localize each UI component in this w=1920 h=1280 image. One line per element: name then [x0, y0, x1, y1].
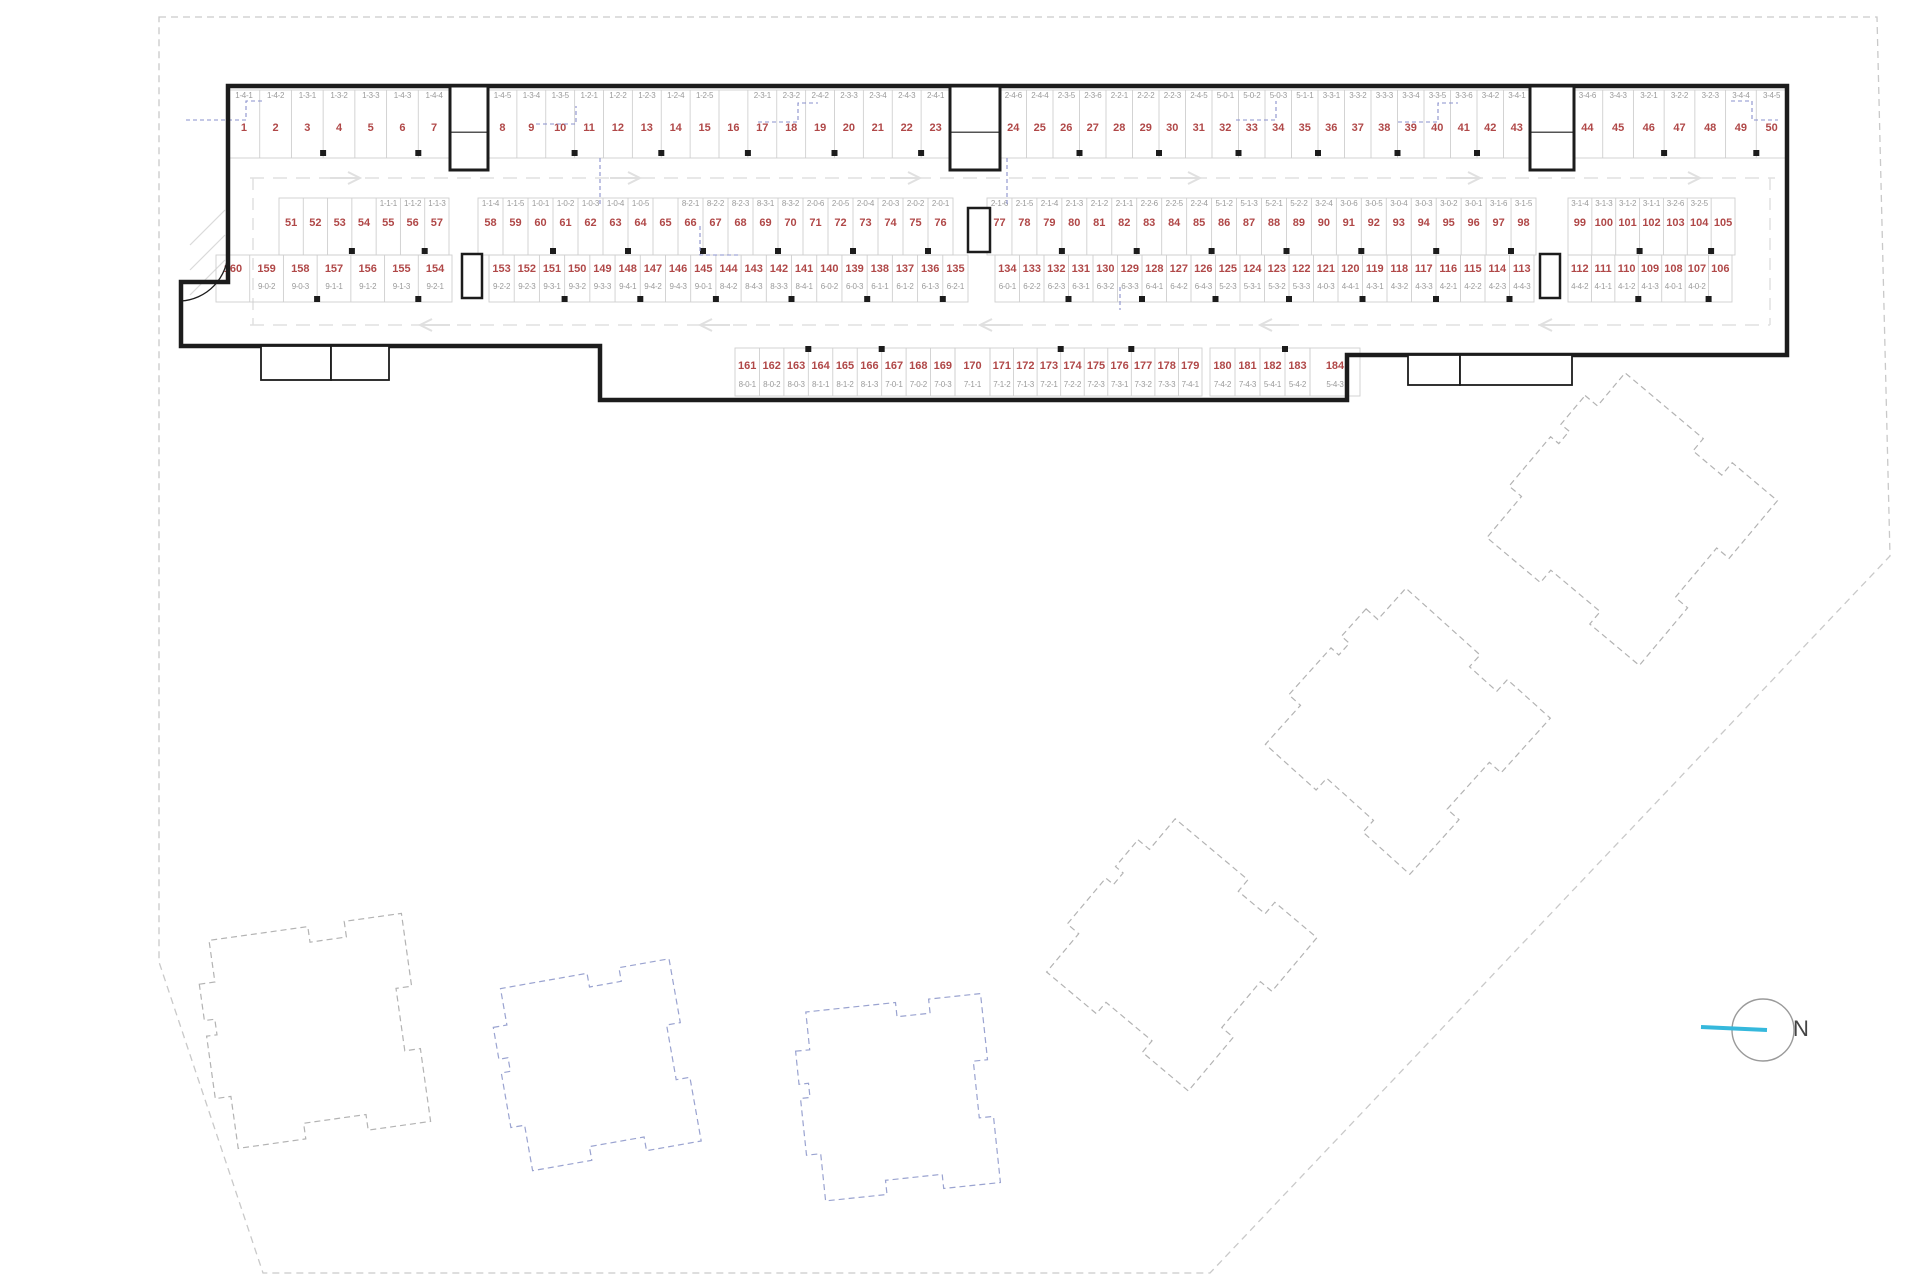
parking-space-code: 2-3-6: [1084, 91, 1102, 100]
parking-space-number: 145: [694, 263, 712, 275]
parking-space-code: 1-3-5: [552, 91, 570, 100]
column: [864, 296, 870, 302]
parking-space-number: 84: [1168, 217, 1181, 229]
parking-space-code: 1-3-3: [362, 91, 380, 100]
parking-space-number: 129: [1121, 263, 1139, 275]
parking-space-code: 1-1-2: [404, 199, 422, 208]
column: [1635, 296, 1641, 302]
parking-space-number: 94: [1418, 217, 1431, 229]
column: [805, 346, 811, 352]
parking-space-number: 66: [684, 217, 696, 229]
parking-space-code: 9-1-1: [325, 282, 343, 291]
parking-space-number: 169: [934, 360, 952, 372]
parking-space-code: 9-2-3: [518, 282, 536, 291]
parking-space-code: 6-0-1: [999, 282, 1017, 291]
parking-space-code: 7-4-1: [1182, 380, 1200, 389]
parking-space-number: 48: [1704, 122, 1716, 134]
parking-space-number: 149: [593, 263, 611, 275]
parking-space-number: 157: [325, 263, 343, 275]
column: [1360, 296, 1366, 302]
parking-space-code: 3-0-1: [1465, 199, 1483, 208]
parking-space-code: 9-3-3: [594, 282, 612, 291]
parking-space-number: 26: [1060, 122, 1072, 134]
parking-space-number: 37: [1352, 122, 1364, 134]
parking-space-code: 1-4-5: [494, 91, 512, 100]
column: [1213, 296, 1219, 302]
parking-space-code: 4-0-2: [1688, 282, 1706, 291]
parking-space-code: 5-0-1: [1217, 91, 1235, 100]
parking-space-number: 51: [285, 217, 297, 229]
column: [1395, 150, 1401, 156]
parking-space-number: 71: [809, 217, 821, 229]
parking-space-number: 79: [1043, 217, 1055, 229]
parking-space-code: 3-3-3: [1376, 91, 1394, 100]
column: [415, 296, 421, 302]
parking-space-number: 173: [1040, 360, 1058, 372]
parking-space-code: 7-2-3: [1087, 380, 1105, 389]
parking-space-number: 158: [291, 263, 309, 275]
parking-space-code: 1-3-4: [523, 91, 541, 100]
parking-space-number: 16: [727, 122, 739, 134]
parking-space-number: 92: [1368, 217, 1380, 229]
parking-space-code: 9-1-3: [393, 282, 411, 291]
parking-space-number: 123: [1268, 263, 1286, 275]
parking-space-number: 134: [998, 263, 1017, 275]
column: [745, 150, 751, 156]
parking-space-number: 135: [946, 263, 964, 275]
parking-space-number: 150: [568, 263, 586, 275]
parking-space-number: 80: [1068, 217, 1080, 229]
parking-space-number: 111: [1595, 263, 1612, 275]
parking-space-number: 95: [1443, 217, 1455, 229]
parking-space-code: 3-3-1: [1323, 91, 1341, 100]
parking-space-number: 29: [1140, 122, 1152, 134]
parking-space-code: 3-4-2: [1482, 91, 1500, 100]
parking-space-code: 2-0-5: [832, 199, 850, 208]
parking-space-code: 2-0-4: [857, 199, 875, 208]
parking-space-number: 45: [1612, 122, 1624, 134]
parking-space-number: 142: [770, 263, 788, 275]
parking-space-code: 2-3-2: [783, 91, 801, 100]
parking-space-code: 8-3-1: [757, 199, 775, 208]
column: [349, 248, 355, 254]
parking-space-code: 3-2-5: [1691, 199, 1709, 208]
unit-boundary-dash: [758, 103, 818, 122]
parking-space-number: 99: [1574, 217, 1586, 229]
parking-space-code: 2-1-4: [1041, 199, 1059, 208]
parking-space-number: 140: [820, 263, 838, 275]
parking-space-code: 3-4-6: [1579, 91, 1597, 100]
parking-space-number: 131: [1072, 263, 1090, 275]
column: [940, 296, 946, 302]
parking-space-number: 125: [1219, 263, 1237, 275]
parking-space-number: 146: [669, 263, 687, 275]
parking-space-code: 8-2-1: [682, 199, 700, 208]
parking-space-code: 4-4-3: [1513, 282, 1531, 291]
elevator-shaft: [1540, 254, 1560, 298]
parking-space-number: 155: [392, 263, 410, 275]
unit-boundary-dash: [1236, 101, 1276, 120]
column: [832, 150, 838, 156]
parking-space-code: 2-4-3: [898, 91, 916, 100]
parking-space-number: 130: [1096, 263, 1114, 275]
parking-space-number: 119: [1366, 263, 1384, 275]
parking-space-number: 14: [670, 122, 683, 134]
parking-space-number: 3: [304, 122, 310, 134]
parking-space-code: 8-3-2: [782, 199, 800, 208]
column: [1077, 150, 1083, 156]
parking-space-code: 4-2-2: [1464, 282, 1482, 291]
parking-space-number: 176: [1110, 360, 1128, 372]
parking-space-number: 64: [634, 217, 647, 229]
column: [1661, 150, 1667, 156]
parking-space-number: 120: [1341, 263, 1359, 275]
parking-space-code: 1-4-2: [267, 91, 285, 100]
parking-space-code: 1-2-4: [667, 91, 685, 100]
floor-plan-drawing: 11-4-121-4-231-3-141-3-251-3-361-4-371-4…: [0, 0, 1920, 1280]
parking-space-code: 2-3-4: [869, 91, 887, 100]
parking-space-number: 106: [1711, 263, 1729, 275]
parking-space-code: 7-2-2: [1064, 380, 1082, 389]
parking-space-number: 75: [909, 217, 921, 229]
parking-space-code: 5-1-3: [1240, 199, 1258, 208]
column: [314, 296, 320, 302]
parking-space-code: 6-0-2: [821, 282, 839, 291]
parking-space-code: 1-0-3: [582, 199, 600, 208]
parking-space-number: 13: [641, 122, 653, 134]
building-footprint: [1487, 373, 1778, 666]
parking-space-code: 4-3-2: [1391, 282, 1409, 291]
parking-space-code: 1-2-2: [609, 91, 627, 100]
parking-space-number: 132: [1047, 263, 1065, 275]
parking-space-code: 6-3-1: [1072, 282, 1090, 291]
parking-space-number: 93: [1393, 217, 1405, 229]
parking-space-number: 46: [1643, 122, 1655, 134]
parking-space-number: 32: [1219, 122, 1231, 134]
parking-space-code: 1-0-4: [607, 199, 625, 208]
parking-space-code: 4-2-3: [1489, 282, 1507, 291]
parking-space-number: 121: [1317, 263, 1335, 275]
parking-space-code: 8-2-2: [707, 199, 725, 208]
parking-space-number: 162: [763, 360, 781, 372]
parking-space-number: 34: [1272, 122, 1285, 134]
parking-space-code: 6-2-2: [1023, 282, 1041, 291]
column: [550, 248, 556, 254]
parking-space-code: 6-4-2: [1170, 282, 1188, 291]
column: [1236, 150, 1242, 156]
parking-space-number: 152: [518, 263, 536, 275]
parking-space-number: 122: [1292, 263, 1310, 275]
parking-space-code: 3-1-6: [1490, 199, 1508, 208]
parking-space-number: 96: [1467, 217, 1479, 229]
parking-space-code: 3-4-3: [1610, 91, 1628, 100]
parking-space-code: 5-2-3: [1219, 282, 1237, 291]
parking-space-number: 124: [1243, 263, 1262, 275]
parking-space-code: 9-0-1: [695, 282, 713, 291]
parking-space-number: 62: [584, 217, 596, 229]
parking-space-number: 18: [785, 122, 797, 134]
service-room: [1408, 355, 1460, 385]
parking-space-code: 5-1-2: [1216, 199, 1234, 208]
column: [1284, 248, 1290, 254]
parking-space-code: 6-0-3: [846, 282, 864, 291]
parking-space-code: 2-4-5: [1190, 91, 1208, 100]
column: [713, 296, 719, 302]
column: [1508, 248, 1514, 254]
parking-space-code: 1-3-2: [330, 91, 348, 100]
parking-space-code: 8-3-3: [770, 282, 788, 291]
parking-space-number: 53: [334, 217, 346, 229]
parking-space-number: 78: [1018, 217, 1030, 229]
parking-space-number: 143: [745, 263, 763, 275]
column: [1474, 150, 1480, 156]
parking-space-code: 3-4-4: [1732, 91, 1750, 100]
column: [1358, 248, 1364, 254]
column: [1507, 296, 1513, 302]
parking-space-number: 154: [426, 263, 445, 275]
column: [625, 248, 631, 254]
parking-space-code: 6-2-3: [1048, 282, 1066, 291]
parking-space-number: 8: [499, 122, 505, 134]
parking-space-number: 184: [1326, 360, 1345, 372]
parking-space-code: 3-3-6: [1455, 91, 1473, 100]
parking-space-code: 2-4-2: [812, 91, 830, 100]
parking-space-code: 5-0-2: [1243, 91, 1261, 100]
parking-space-number: 12: [612, 122, 624, 134]
parking-space-number: 65: [659, 217, 671, 229]
parking-space-number: 180: [1213, 360, 1231, 372]
column: [320, 150, 326, 156]
parking-space-number: 118: [1390, 263, 1408, 275]
parking-space-number: 116: [1439, 263, 1457, 275]
parking-space-number: 74: [884, 217, 897, 229]
parking-space-code: 7-1-2: [993, 380, 1011, 389]
parking-space-number: 4: [336, 122, 343, 134]
parking-space-code: 9-3-1: [543, 282, 561, 291]
parking-space-code: 2-2-2: [1137, 91, 1155, 100]
parking-space-number: 114: [1488, 263, 1507, 275]
column: [658, 150, 664, 156]
parking-space-code: 6-1-1: [871, 282, 889, 291]
column: [775, 248, 781, 254]
parking-space-code: 3-1-5: [1515, 199, 1533, 208]
stair-core: [1530, 86, 1574, 170]
parking-space-number: 83: [1143, 217, 1155, 229]
parking-space-number: 137: [896, 263, 914, 275]
column: [1128, 346, 1134, 352]
elevator-shaft: [968, 208, 990, 252]
parking-space-code: 8-1-2: [836, 380, 854, 389]
parking-space-code: 2-3-1: [754, 91, 772, 100]
column: [1209, 248, 1215, 254]
parking-space-code: 2-2-1: [1111, 91, 1129, 100]
parking-space-number: 56: [406, 217, 418, 229]
parking-space-number: 133: [1023, 263, 1041, 275]
parking-space-code: 3-2-4: [1315, 199, 1333, 208]
parking-space-number: 179: [1181, 360, 1199, 372]
parking-space-code: 1-1-5: [507, 199, 525, 208]
parking-space-code: 3-2-6: [1667, 199, 1685, 208]
parking-space-number: 47: [1673, 122, 1685, 134]
parking-space-code: 1-2-3: [638, 91, 656, 100]
unit-boundary-dash: [1398, 103, 1458, 122]
parking-space-code: 3-3-5: [1429, 91, 1447, 100]
parking-space-number: 82: [1118, 217, 1130, 229]
parking-space-code: 3-1-2: [1619, 199, 1637, 208]
parking-space-number: 77: [993, 217, 1005, 229]
parking-space-number: 97: [1492, 217, 1504, 229]
parking-space-number: 54: [358, 217, 371, 229]
parking-space-number: 52: [309, 217, 321, 229]
parking-space-code: 2-0-1: [932, 199, 950, 208]
parking-space-number: 167: [885, 360, 903, 372]
parking-space-code: 5-2-2: [1290, 199, 1308, 208]
parking-space-number: 11: [583, 122, 595, 134]
parking-space-code: 9-2-2: [493, 282, 511, 291]
parking-space-number: 85: [1193, 217, 1205, 229]
unit-boundary-dash: [186, 101, 263, 120]
parking-space-code: 2-4-1: [927, 91, 945, 100]
parking-space-number: 1: [241, 122, 247, 134]
parking-space-code: 7-3-1: [1111, 380, 1129, 389]
parking-space-number: 67: [709, 217, 721, 229]
parking-space-number: 170: [963, 360, 981, 372]
parking-space-code: 3-0-3: [1415, 199, 1433, 208]
parking-space-code: 5-4-3: [1326, 380, 1344, 389]
parking-space-code: 8-2-3: [732, 199, 750, 208]
unit-boundary-dash: [1731, 101, 1778, 120]
parking-space-code: 4-1-1: [1595, 282, 1613, 291]
parking-space-number: 148: [619, 263, 637, 275]
parking-space-code: 2-4-6: [1005, 91, 1023, 100]
parking-space-code: 4-1-2: [1618, 282, 1636, 291]
parking-space-number: 115: [1464, 263, 1482, 275]
parking-space-code: 8-4-1: [796, 282, 814, 291]
parking-space-number: 178: [1158, 360, 1176, 372]
parking-space-code: 5-4-2: [1289, 380, 1307, 389]
parking-space-number: 113: [1513, 263, 1531, 275]
parking-space-number: 147: [644, 263, 662, 275]
parking-space-code: 6-3-3: [1121, 282, 1139, 291]
parking-space-number: 165: [836, 360, 854, 372]
parking-space-number: 50: [1765, 122, 1777, 134]
parking-space-code: 2-2-3: [1164, 91, 1182, 100]
parking-space-code: 9-4-1: [619, 282, 637, 291]
column: [1433, 296, 1439, 302]
parking-space-number: 171: [993, 360, 1011, 372]
parking-space-code: 5-3-3: [1293, 282, 1311, 291]
parking-space-code: 3-0-2: [1440, 199, 1458, 208]
building-footprint: [796, 994, 1001, 1201]
parking-space-number: 7: [431, 122, 437, 134]
parking-space-number: 141: [795, 263, 813, 275]
parking-space-code: 1-4-1: [235, 91, 253, 100]
parking-space-number: 105: [1714, 217, 1732, 229]
parking-space-code: 7-4-3: [1239, 380, 1257, 389]
parking-space-code: 3-4-5: [1763, 91, 1781, 100]
parking-space-number: 20: [843, 122, 855, 134]
parking-space-number: 35: [1299, 122, 1311, 134]
parking-space-number: 72: [834, 217, 846, 229]
north-label: N: [1793, 1016, 1809, 1042]
parking-space-number: 70: [784, 217, 796, 229]
parking-space-number: 181: [1238, 360, 1256, 372]
column: [415, 150, 421, 156]
parking-space-number: 101: [1618, 217, 1636, 229]
parking-space-code: 2-1-5: [1016, 199, 1034, 208]
parking-space-number: 39: [1405, 122, 1417, 134]
parking-space-number: 60: [534, 217, 546, 229]
parking-space-number: 90: [1318, 217, 1330, 229]
column: [1753, 150, 1759, 156]
parking-space-number: 166: [860, 360, 878, 372]
parking-space-code: 8-4-2: [720, 282, 738, 291]
parking-space-code: 1-3-1: [299, 91, 317, 100]
parking-space-code: 4-3-3: [1415, 282, 1433, 291]
parking-space-code: 5-3-2: [1268, 282, 1286, 291]
parking-space-code: 2-3-5: [1058, 91, 1076, 100]
parking-space-code: 8-0-3: [788, 380, 806, 389]
parking-space-code: 2-1-6: [991, 199, 1009, 208]
parking-space-code: 4-1-3: [1641, 282, 1659, 291]
parking-space-code: 1-2-5: [696, 91, 714, 100]
column: [879, 346, 885, 352]
parking-space-number: 102: [1642, 217, 1660, 229]
parking-space-number: 175: [1087, 360, 1105, 372]
column: [1708, 248, 1714, 254]
parking-space-number: 76: [934, 217, 946, 229]
parking-space-number: 63: [609, 217, 621, 229]
parking-space-code: 4-0-3: [1317, 282, 1335, 291]
parking-space-number: 104: [1690, 217, 1709, 229]
parking-space-number: 28: [1113, 122, 1125, 134]
parking-space-number: 40: [1431, 122, 1443, 134]
parking-space-number: 49: [1735, 122, 1747, 134]
parking-space-code: 7-2-1: [1040, 380, 1058, 389]
parking-space-number: 42: [1484, 122, 1496, 134]
column: [1433, 248, 1439, 254]
parking-space-number: 68: [734, 217, 746, 229]
parking-space-number: 25: [1034, 122, 1046, 134]
parking-space-code: 5-1-1: [1296, 91, 1314, 100]
parking-space-code: 1-1-1: [380, 199, 398, 208]
column: [1134, 248, 1140, 254]
parking-space-number: 91: [1343, 217, 1355, 229]
parking-space-code: 3-4-1: [1508, 91, 1526, 100]
column: [925, 248, 931, 254]
parking-space-number: 168: [909, 360, 927, 372]
parking-space-code: 1-4-4: [426, 91, 444, 100]
parking-space-code: 1-0-1: [532, 199, 550, 208]
column: [572, 150, 578, 156]
parking-space-code: 6-4-1: [1146, 282, 1164, 291]
building-footprint: [199, 913, 430, 1148]
stair-core: [950, 86, 1000, 170]
parking-space-code: 5-3-1: [1244, 282, 1262, 291]
parking-space-code: 2-0-3: [882, 199, 900, 208]
column: [1066, 296, 1072, 302]
column: [1282, 346, 1288, 352]
parking-space-code: 1-1-3: [428, 199, 446, 208]
parking-space-code: 8-0-1: [739, 380, 757, 389]
parking-space-code: 7-0-2: [910, 380, 928, 389]
parking-space-number: 107: [1688, 263, 1706, 275]
parking-space-code: 2-4-4: [1031, 91, 1049, 100]
building-footprint: [1265, 588, 1550, 874]
column: [1156, 150, 1162, 156]
parking-space-number: 136: [921, 263, 939, 275]
parking-space-code: 3-0-4: [1390, 199, 1408, 208]
